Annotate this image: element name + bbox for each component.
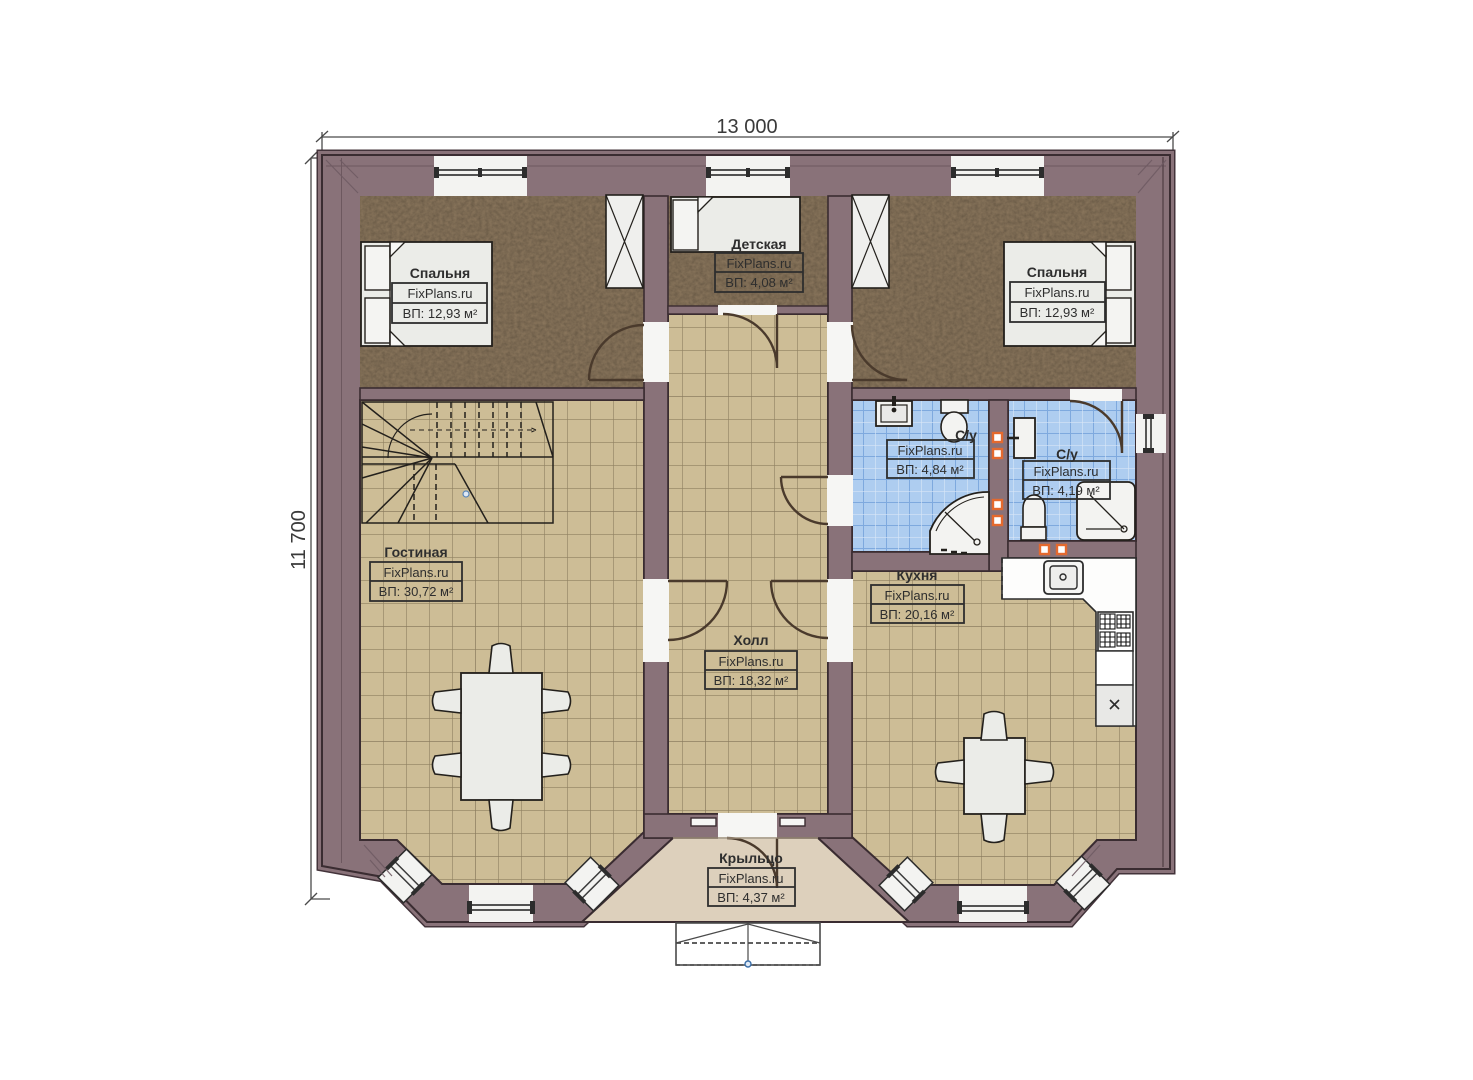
svg-text:ВП: 12,93 м²: ВП: 12,93 м²: [403, 306, 478, 321]
svg-text:Крыльцо: Крыльцо: [719, 850, 783, 866]
svg-text:Спальня: Спальня: [1027, 264, 1087, 280]
svg-text:FixPlans.ru: FixPlans.ru: [726, 256, 791, 271]
svg-text:FixPlans.ru: FixPlans.ru: [718, 871, 783, 886]
svg-text:Детская: Детская: [731, 236, 786, 252]
svg-text:ВП: 4,19 м²: ВП: 4,19 м²: [1032, 483, 1100, 498]
svg-text:ВП: 4,08 м²: ВП: 4,08 м²: [725, 275, 793, 290]
svg-text:ВП: 30,72 м²: ВП: 30,72 м²: [379, 584, 454, 599]
svg-text:Спальня: Спальня: [410, 265, 470, 281]
svg-text:13 000: 13 000: [716, 116, 777, 138]
svg-text:FixPlans.ru: FixPlans.ru: [1024, 285, 1089, 300]
svg-text:FixPlans.ru: FixPlans.ru: [718, 654, 783, 669]
svg-text:FixPlans.ru: FixPlans.ru: [1033, 464, 1098, 479]
svg-text:FixPlans.ru: FixPlans.ru: [884, 588, 949, 603]
svg-text:11 700: 11 700: [288, 510, 310, 570]
svg-text:ВП: 20,16 м²: ВП: 20,16 м²: [880, 607, 955, 622]
svg-text:ВП: 4,37 м²: ВП: 4,37 м²: [717, 890, 785, 905]
svg-text:FixPlans.ru: FixPlans.ru: [383, 565, 448, 580]
svg-text:Холл: Холл: [733, 632, 768, 648]
svg-text:С/у: С/у: [1056, 446, 1078, 462]
svg-text:ВП: 18,32 м²: ВП: 18,32 м²: [714, 673, 789, 688]
svg-text:ВП: 12,93 м²: ВП: 12,93 м²: [1020, 305, 1095, 320]
svg-text:FixPlans.ru: FixPlans.ru: [897, 443, 962, 458]
svg-text:FixPlans.ru: FixPlans.ru: [407, 286, 472, 301]
svg-text:ВП: 4,84 м²: ВП: 4,84 м²: [896, 462, 964, 477]
svg-text:Кухня: Кухня: [897, 567, 938, 583]
svg-text:Гостиная: Гостиная: [384, 544, 447, 560]
